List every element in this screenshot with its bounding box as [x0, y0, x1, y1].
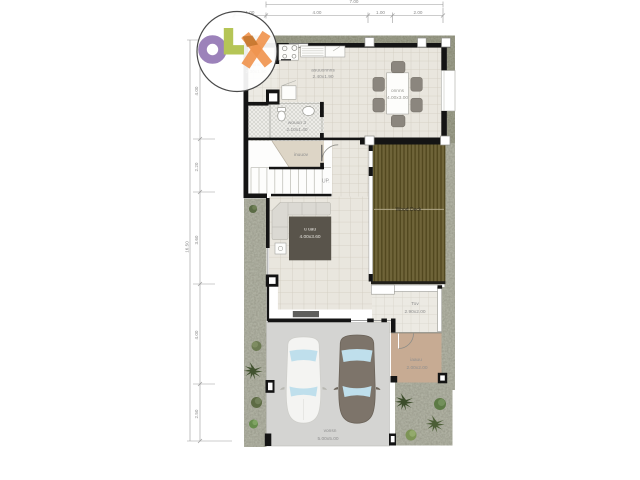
svg-text:4.00x3.60: 4.00x3.60	[299, 234, 320, 240]
svg-text:2.40x1.90: 2.40x1.90	[312, 74, 333, 80]
svg-text:4.00x3.00: 4.00x3.00	[387, 95, 408, 101]
svg-text:2.50: 2.50	[194, 409, 199, 418]
svg-text:5.00x5.00: 5.00x5.00	[317, 436, 338, 442]
svg-text:4.00: 4.00	[194, 330, 199, 339]
svg-text:16.50: 16.50	[185, 241, 190, 253]
svg-text:u uau: u uau	[304, 228, 316, 233]
svg-text:2.90x2.00: 2.90x2.00	[404, 309, 425, 315]
svg-text:onnns: onnns	[391, 89, 405, 94]
svg-text:2.20: 2.20	[194, 162, 199, 171]
svg-text:iaauu: iaauu	[410, 357, 422, 363]
svg-text:4.00: 4.00	[313, 10, 322, 15]
svg-text:3.60: 3.60	[194, 235, 199, 244]
svg-text:2.00x2.00: 2.00x2.00	[406, 365, 427, 371]
svg-text:4.00: 4.00	[194, 86, 199, 95]
svg-text:7.00: 7.00	[350, 0, 359, 4]
svg-text:2.10x1.40: 2.10x1.40	[286, 127, 307, 133]
svg-text:Tov: Tov	[411, 301, 419, 307]
svg-text:inuuov: inuuov	[294, 152, 309, 158]
svg-text:2.00: 2.00	[414, 10, 423, 15]
svg-text:wouun 3: wouun 3	[288, 120, 306, 126]
svg-text:vonsn: vonsn	[324, 429, 337, 434]
svg-text:asuuonnns: asuuonnns	[311, 69, 335, 74]
svg-text:UP.: UP.	[322, 179, 330, 185]
svg-text:Wood Deck: Wood Deck	[396, 207, 422, 213]
svg-text:1.00: 1.00	[376, 10, 385, 15]
